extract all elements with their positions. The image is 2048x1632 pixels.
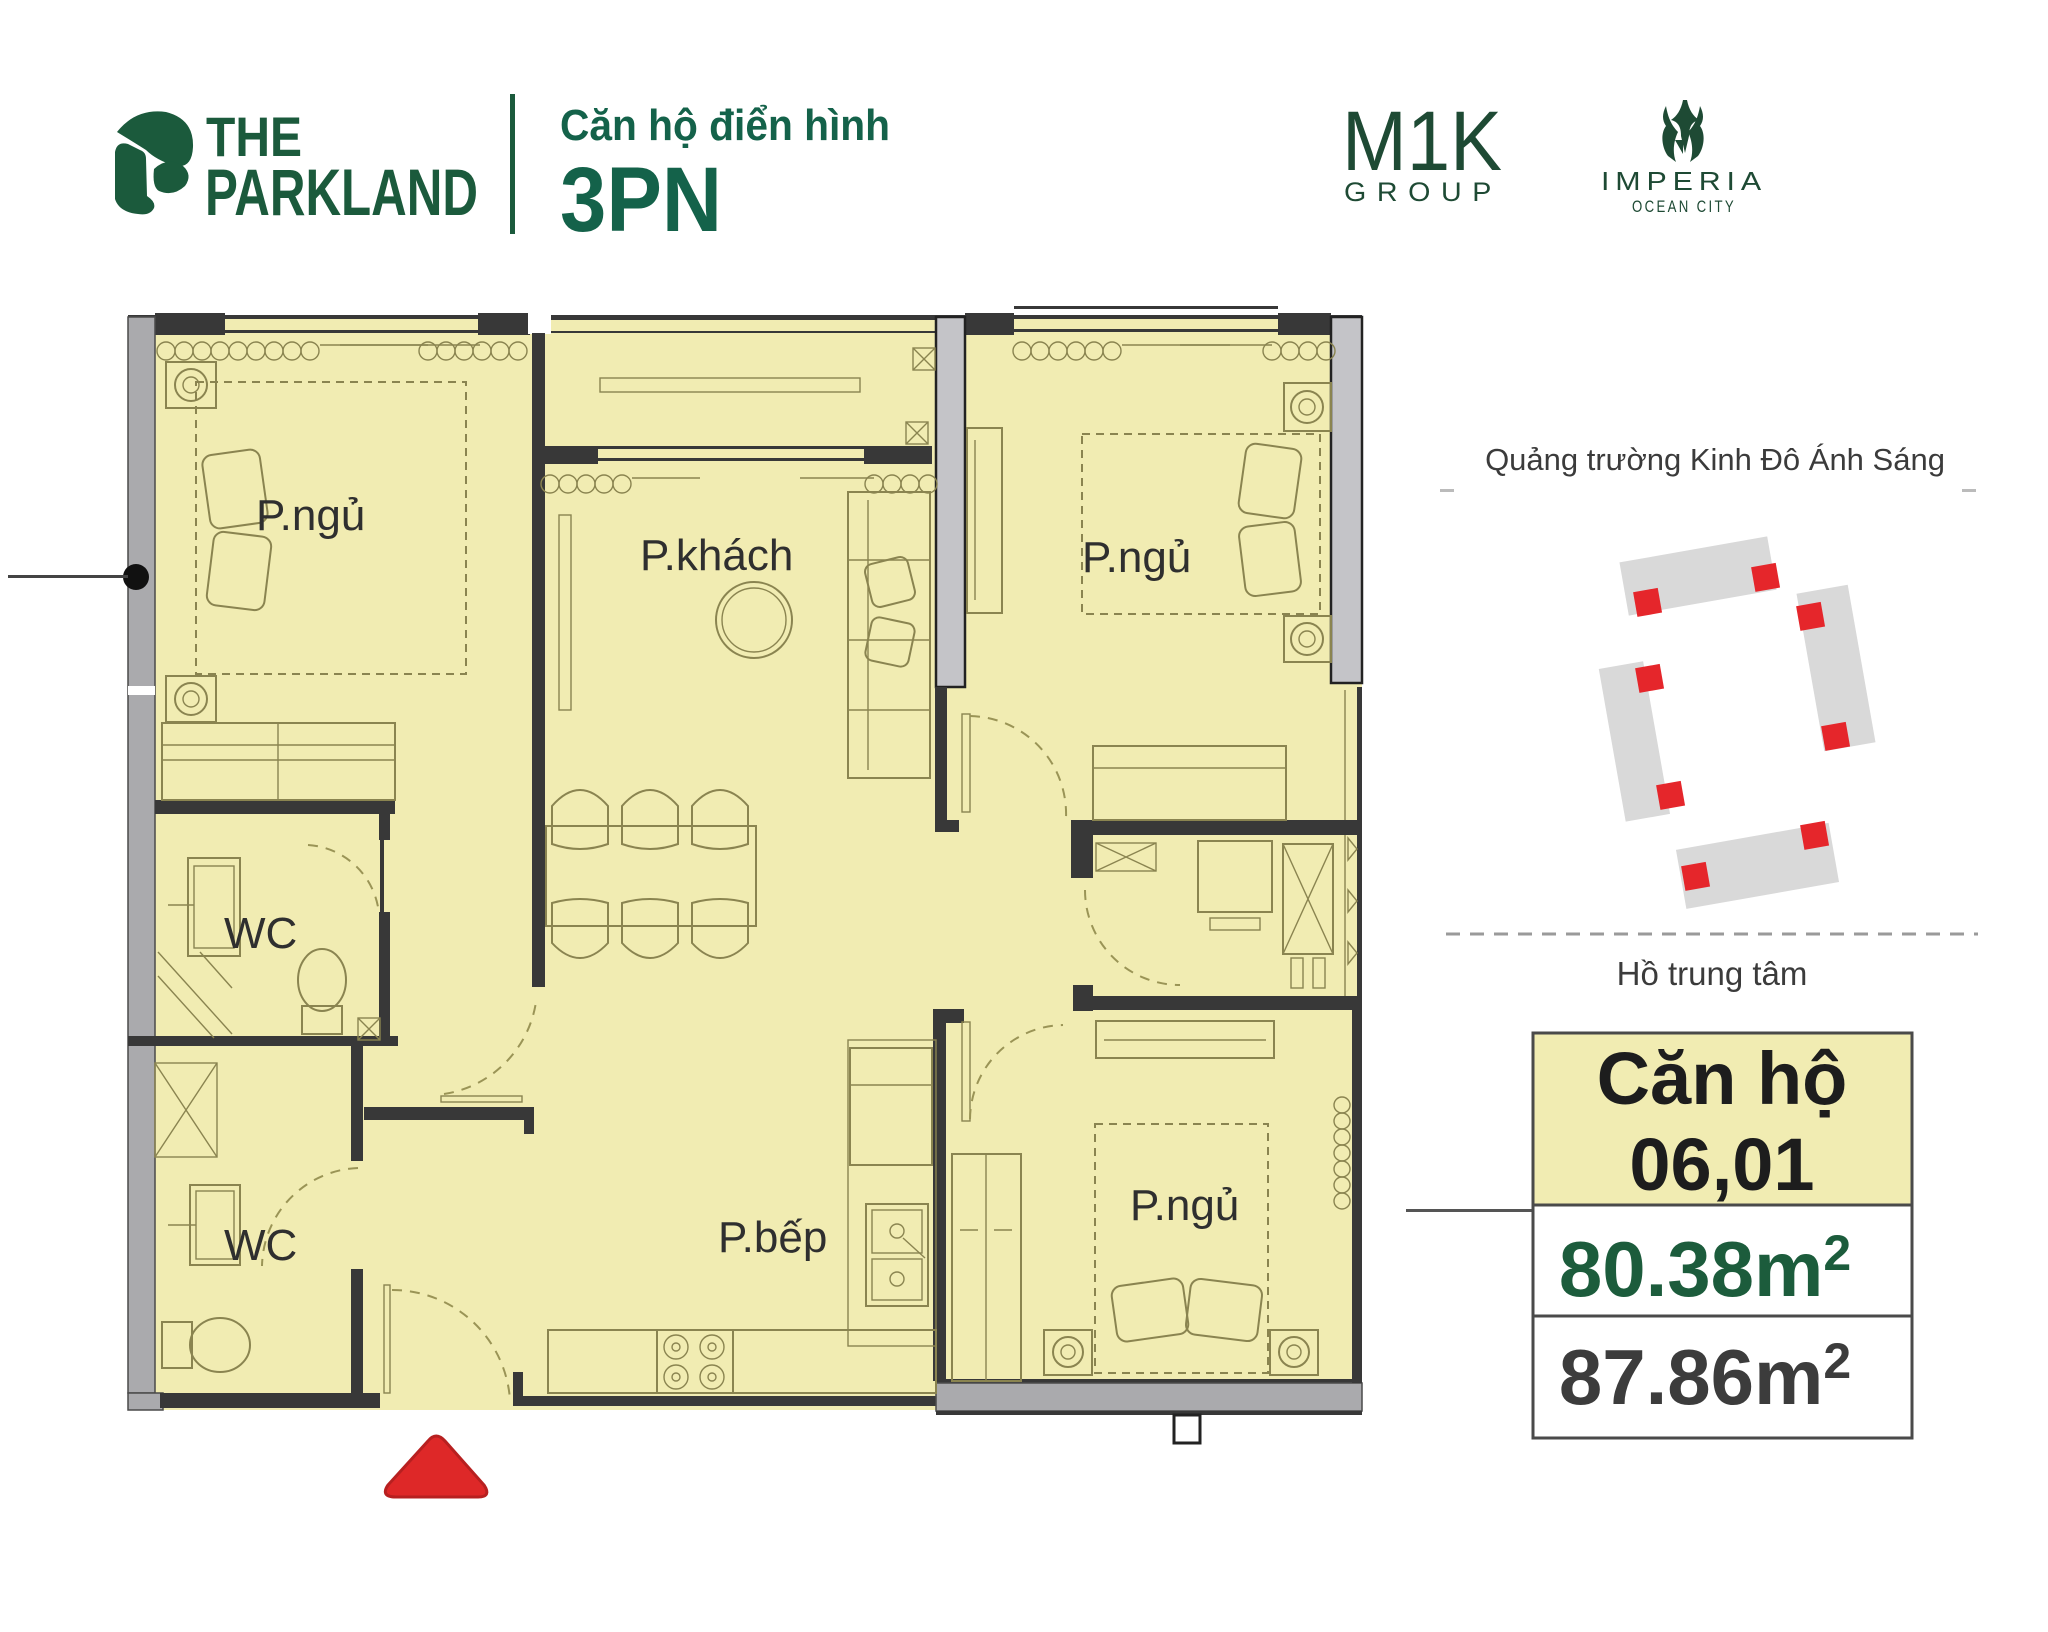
svg-text:Hồ trung tâm: Hồ trung tâm <box>1617 955 1808 992</box>
svg-text:3PN: 3PN <box>560 149 722 251</box>
svg-text:M1K: M1K <box>1342 94 1502 188</box>
svg-text:P.khách: P.khách <box>640 531 793 580</box>
svg-text:Căn hộ điển hình: Căn hộ điển hình <box>560 101 890 150</box>
svg-text:P.bếp: P.bếp <box>718 1213 827 1262</box>
svg-text:P.ngủ: P.ngủ <box>1082 533 1191 582</box>
svg-text:Quảng trường Kinh Đô Ánh Sáng: Quảng trường Kinh Đô Ánh Sáng <box>1485 442 1945 477</box>
svg-text:OCEAN CITY: OCEAN CITY <box>1632 197 1736 216</box>
svg-text:PARKLAND: PARKLAND <box>205 155 478 229</box>
svg-text:06,01: 06,01 <box>1629 1123 1814 1206</box>
svg-text:WC: WC <box>224 1221 297 1270</box>
svg-text:P.ngủ: P.ngủ <box>256 491 365 540</box>
svg-text:WC: WC <box>224 909 297 958</box>
svg-text:Căn hộ: Căn hộ <box>1597 1037 1848 1120</box>
svg-text:80.38m2: 80.38m2 <box>1559 1225 1851 1313</box>
svg-text:IMPERIA: IMPERIA <box>1601 166 1767 196</box>
svg-text:P.ngủ: P.ngủ <box>1130 1181 1239 1230</box>
svg-text:87.86m2: 87.86m2 <box>1559 1333 1851 1421</box>
svg-text:GROUP: GROUP <box>1344 177 1502 207</box>
